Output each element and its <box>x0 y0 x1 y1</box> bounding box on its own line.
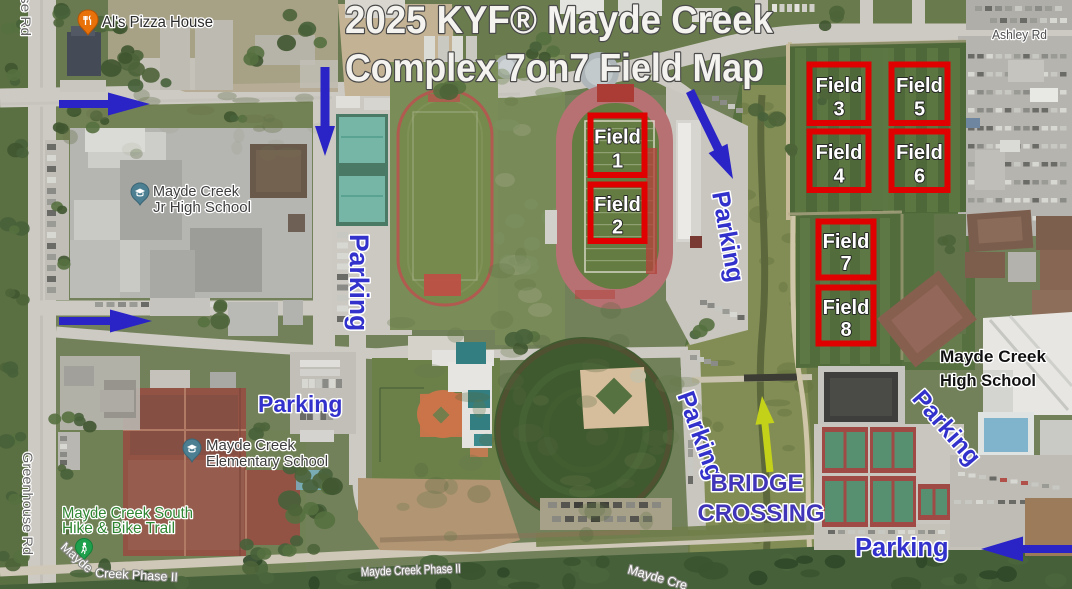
svg-text:Field: Field <box>896 142 943 164</box>
svg-text:3: 3 <box>833 98 844 120</box>
svg-text:Field: Field <box>823 297 870 319</box>
svg-text:Mayde Creek: Mayde Creek <box>206 437 295 454</box>
svg-text:Al's Pizza House: Al's Pizza House <box>102 14 213 31</box>
svg-text:BRIDGE: BRIDGE <box>711 470 804 497</box>
svg-text:Field: Field <box>896 75 943 97</box>
svg-text:Greenhouse Rd: Greenhouse Rd <box>20 452 35 555</box>
svg-text:Ashley Rd: Ashley Rd <box>992 27 1047 42</box>
svg-text:Field: Field <box>816 142 863 164</box>
svg-text:Field: Field <box>823 231 870 253</box>
svg-text:Mayde Creek: Mayde Creek <box>940 347 1047 366</box>
svg-text:2: 2 <box>612 217 623 239</box>
svg-text:2025 KYF® Mayde Creek: 2025 KYF® Mayde Creek <box>345 0 773 42</box>
svg-text:se Rd: se Rd <box>18 0 33 36</box>
svg-text:1: 1 <box>612 150 623 172</box>
svg-text:Parking: Parking <box>258 391 342 417</box>
svg-text:Mayde Creek: Mayde Creek <box>153 184 240 200</box>
svg-text:Field: Field <box>594 194 641 216</box>
svg-text:4: 4 <box>833 165 845 187</box>
svg-text:5: 5 <box>914 98 925 120</box>
svg-text:Parking: Parking <box>344 234 374 331</box>
svg-text:Field: Field <box>816 75 863 97</box>
svg-text:CROSSING: CROSSING <box>698 500 825 527</box>
svg-text:Parking: Parking <box>855 534 949 562</box>
svg-text:Jr High School: Jr High School <box>153 200 251 216</box>
svg-text:Field: Field <box>594 126 641 148</box>
svg-text:Complex 7on7 Field Map: Complex 7on7 Field Map <box>345 47 764 90</box>
svg-text:8: 8 <box>840 319 851 341</box>
svg-text:7: 7 <box>840 253 851 275</box>
svg-text:6: 6 <box>914 165 925 187</box>
svg-text:Elementary School: Elementary School <box>206 453 328 470</box>
svg-text:High School: High School <box>940 371 1036 390</box>
svg-text:Hike & Bike Trail: Hike & Bike Trail <box>62 520 175 537</box>
